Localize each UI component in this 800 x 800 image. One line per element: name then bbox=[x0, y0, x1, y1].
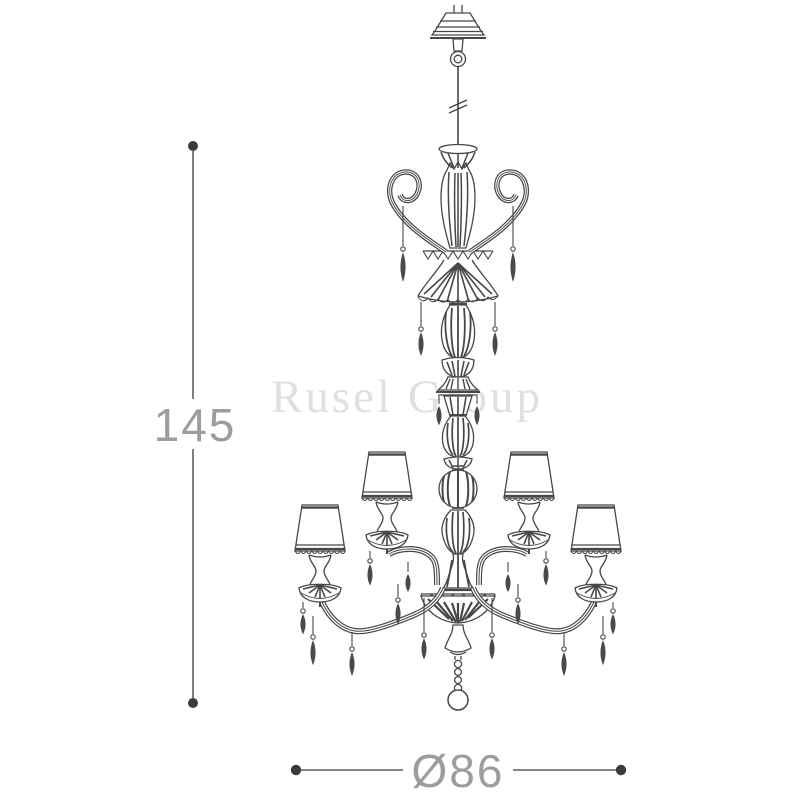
crown-vase bbox=[441, 162, 475, 248]
chandelier-technical-drawing bbox=[0, 0, 800, 800]
crown-cup bbox=[439, 145, 477, 169]
central-column bbox=[436, 304, 480, 590]
height-dimension-label: 145 bbox=[130, 402, 260, 448]
finial-and-ball bbox=[445, 625, 471, 710]
ceiling-canopy bbox=[430, 5, 486, 67]
bottom-bowl bbox=[421, 594, 495, 623]
drawing-canvas: Rusel Group bbox=[0, 0, 800, 800]
ruffled-bell bbox=[418, 251, 498, 303]
hanging-rod bbox=[449, 67, 467, 150]
diameter-dimension-label: Ø86 bbox=[383, 748, 533, 794]
